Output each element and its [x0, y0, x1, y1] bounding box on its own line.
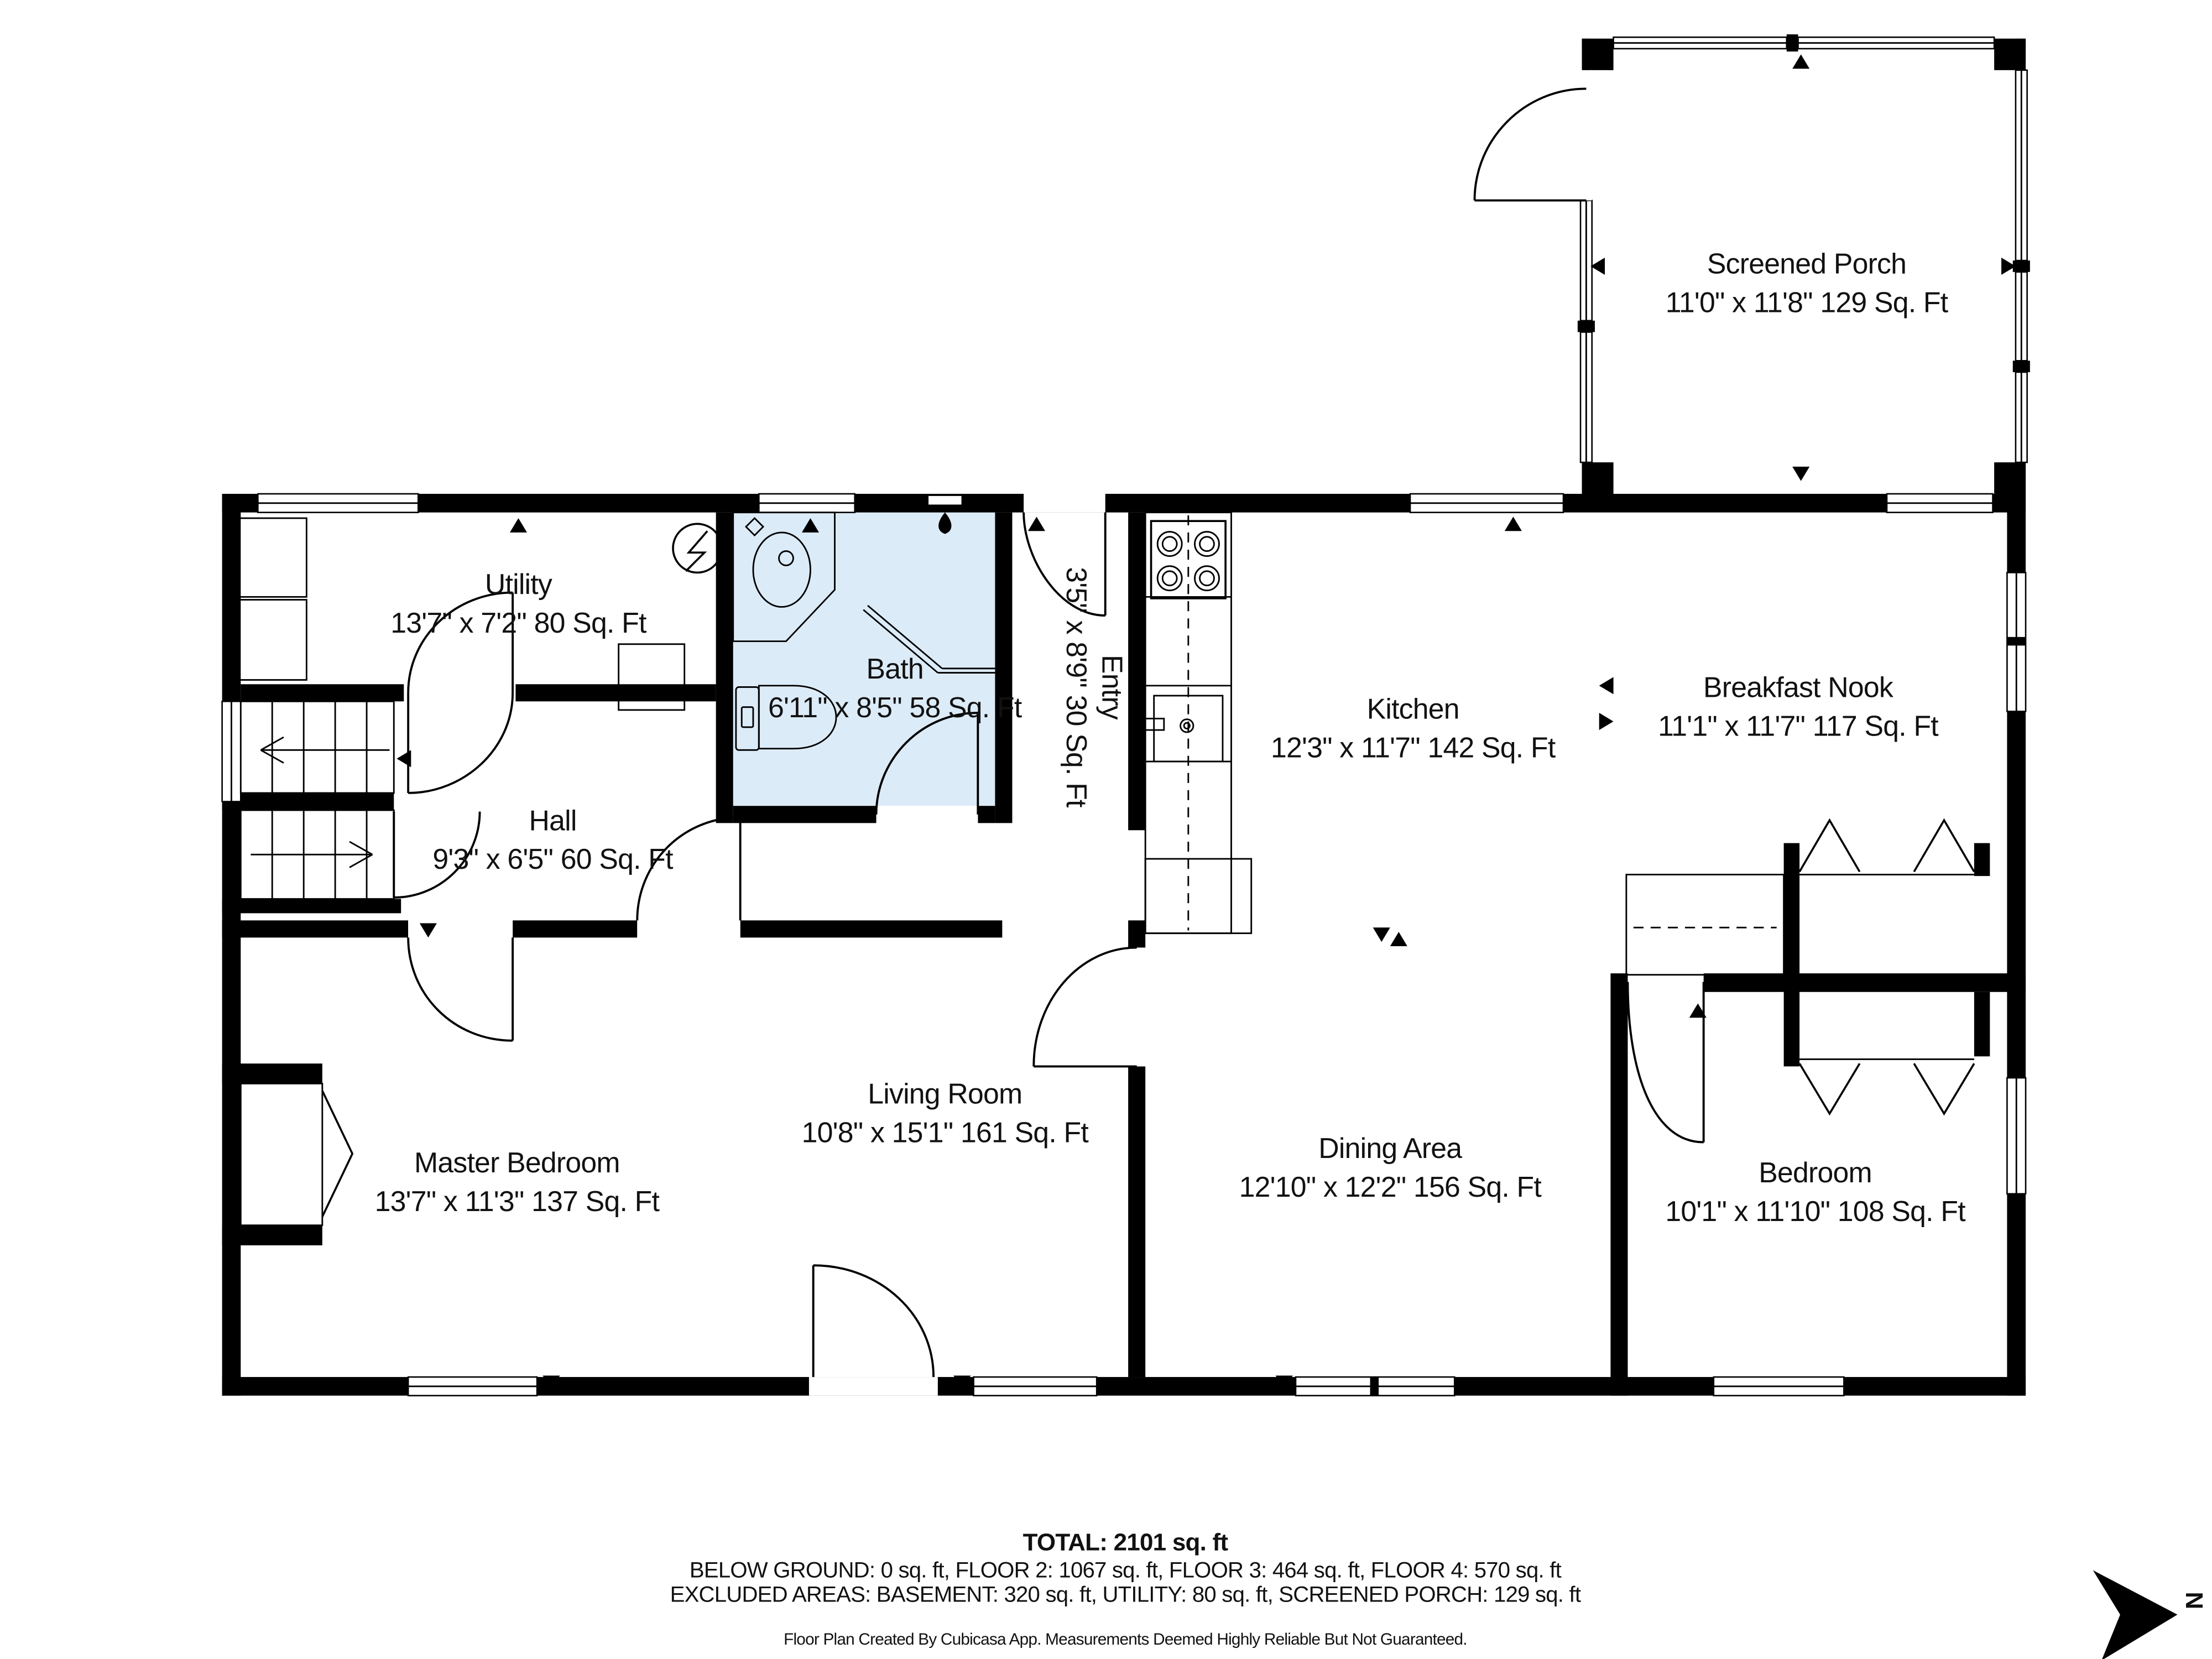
room-dims-entry: 3'5" x 8'9" 30 Sq. Ft [1061, 567, 1093, 807]
room-label-living-room: Living Room [868, 1078, 1022, 1110]
room-label-bedroom: Bedroom [1759, 1156, 1872, 1188]
kitchen-fixtures [1141, 513, 1251, 933]
kitchen-window [1410, 494, 1563, 513]
interior-walls [222, 513, 2026, 1396]
living-room-exterior-door [809, 1265, 938, 1396]
north-label: N [2180, 1592, 2208, 1609]
stairs-up-arrow [261, 737, 390, 763]
bifold-door-icon [1799, 1063, 1860, 1114]
bath-floor [733, 513, 995, 806]
room-dims-breakfast-nook: 11'1" x 11'7" 117 Sq. Ft [1658, 709, 1938, 742]
footer-floors: BELOW GROUND: 0 sq. ft, FLOOR 2: 1067 sq… [690, 1557, 1562, 1582]
room-label-hall: Hall [529, 804, 577, 836]
kitchen-sink [1141, 696, 1223, 761]
footer-total: TOTAL: 2101 sq. ft [1023, 1528, 1229, 1556]
room-dims-hall: 9'3" x 6'5" 60 Sq. Ft [432, 843, 673, 875]
north-arrow-icon [2093, 1571, 2178, 1659]
footer-excluded: EXCLUDED AREAS: BASEMENT: 320 sq. ft, UT… [670, 1582, 1581, 1606]
room-dims-screened-porch: 11'0" x 11'8" 129 Sq. Ft [1666, 286, 1948, 318]
bifold-door-icon [322, 1091, 352, 1217]
master-bedroom-window [408, 1377, 537, 1396]
room-label-utility: Utility [485, 568, 552, 600]
room-dims-living-room: 10'8" x 15'1" 161 Sq. Ft [802, 1117, 1089, 1149]
floor-plan-page: Screened Porch 11'0" x 11'8" 129 Sq. Ft … [0, 0, 2212, 1659]
room-label-screened-porch: Screened Porch [1707, 247, 1906, 279]
porch-screen-door [1475, 70, 1592, 201]
room-label-kitchen: Kitchen [1367, 692, 1459, 724]
bifold-door-icon [1914, 1063, 1974, 1114]
utility-window [258, 494, 418, 513]
footer-disclaimer: Floor Plan Created By Cubicasa App. Meas… [784, 1630, 1467, 1648]
bifold-door-icon [1914, 820, 1974, 872]
dining-area-window [1296, 1377, 1454, 1396]
bedroom-door [1627, 982, 1703, 1142]
hall-living-door [637, 817, 740, 937]
breakfast-closet [1626, 875, 1784, 975]
washer [238, 518, 306, 597]
bedroom-bottom-window [1714, 1377, 1844, 1396]
room-dims-bath: 6'11" x 8'5" 58 Sq. Ft [768, 691, 1022, 723]
living-dining-door [1034, 948, 1145, 1067]
master-closet [241, 1083, 322, 1225]
master-bedroom-door [408, 920, 513, 1040]
kitchen-cabinet [1145, 859, 1251, 933]
bifold-door-icon [1799, 820, 1860, 872]
room-dims-dining-area: 12'10" x 12'2" 156 Sq. Ft [1239, 1171, 1542, 1203]
stairs-window [222, 701, 241, 801]
room-dims-kitchen: 12'3" x 11'7" 142 Sq. Ft [1271, 731, 1556, 763]
stairs-down-arrow [251, 842, 372, 868]
breakfast-nook-right-window [2007, 572, 2026, 711]
room-dims-master-bedroom: 13'7" x 11'3" 137 Sq. Ft [375, 1185, 660, 1217]
room-label-bath: Bath [867, 653, 924, 685]
breakfast-nook-top-window [1887, 494, 1993, 513]
floor-plan-canvas: Screened Porch 11'0" x 11'8" 129 Sq. Ft … [0, 0, 2212, 1659]
footer: TOTAL: 2101 sq. ft BELOW GROUND: 0 sq. f… [670, 1528, 1581, 1648]
water-heater-icon [673, 524, 722, 572]
room-dims-bedroom: 10'1" x 11'10" 108 Sq. Ft [1665, 1195, 1965, 1227]
room-dims-utility: 13'7" x 7'2" 80 Sq. Ft [390, 607, 646, 639]
compass: N [2093, 1571, 2208, 1659]
living-room-window [974, 1377, 1097, 1396]
room-label-master-bedroom: Master Bedroom [414, 1146, 620, 1178]
room-label-entry: Entry [1097, 655, 1129, 720]
dryer [238, 600, 306, 680]
bath-window [759, 494, 854, 513]
room-label-breakfast-nook: Breakfast Nook [1703, 671, 1893, 703]
bedroom-right-window [2007, 1078, 2026, 1194]
shower-head-icon [928, 495, 962, 505]
room-labels: Screened Porch 11'0" x 11'8" 129 Sq. Ft … [375, 247, 1966, 1227]
room-label-dining-area: Dining Area [1318, 1132, 1462, 1164]
